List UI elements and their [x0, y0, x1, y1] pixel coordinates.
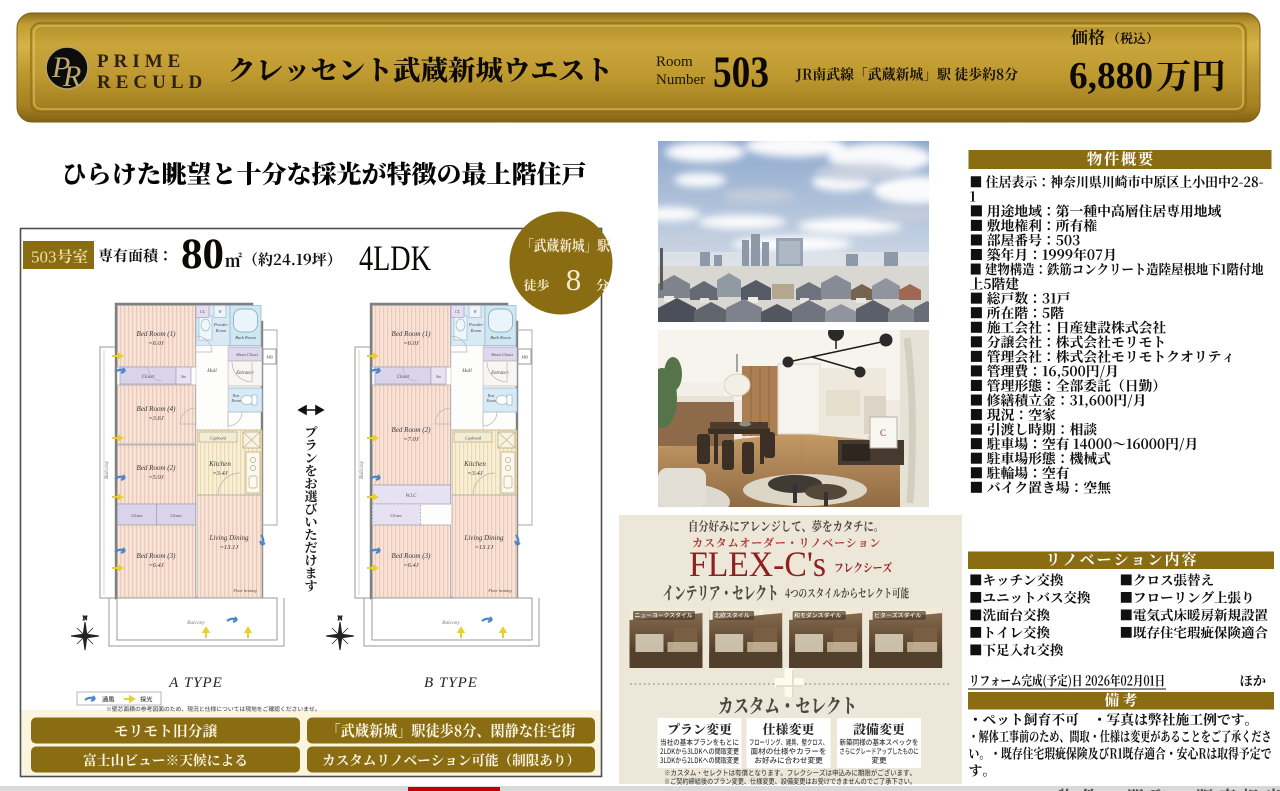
svg-text:8: 8 [566, 262, 582, 297]
svg-text:=6.0J: =6.0J [148, 340, 165, 347]
svg-text:Balcony: Balcony [442, 620, 460, 626]
svg-text:Closet: Closet [131, 513, 143, 518]
svg-text:Floor heating: Floor heating [487, 588, 511, 593]
svg-text:Room: Room [470, 328, 482, 333]
svg-text:Powder: Powder [213, 322, 229, 327]
svg-text:=3.4J: =3.4J [467, 470, 484, 477]
svg-text:Room: Room [230, 399, 240, 403]
svg-text:Room: Room [485, 399, 495, 403]
svg-text:W.I.C: W.I.C [406, 494, 418, 499]
svg-text:Bed Room (4): Bed Room (4) [137, 405, 177, 413]
svg-text:Bed Room (3): Bed Room (3) [137, 552, 177, 560]
svg-text:6,880: 6,880 [1069, 55, 1153, 97]
svg-text:Living Dining: Living Dining [208, 534, 249, 542]
svg-text:Floor heating: Floor heating [232, 588, 256, 593]
svg-text:Number: Number [656, 72, 705, 88]
svg-text:=6.4J: =6.4J [403, 562, 420, 569]
svg-text:N: N [83, 616, 88, 622]
svg-text:C: C [880, 428, 886, 438]
svg-text:Balcony: Balcony [187, 620, 205, 626]
svg-text:Powder: Powder [468, 322, 484, 327]
svg-text:CL: CL [455, 309, 461, 314]
svg-text:Sto: Sto [181, 375, 186, 379]
svg-text:Balcony: Balcony [104, 460, 110, 479]
svg-text:MB: MB [265, 355, 273, 360]
svg-text:Bed Room (1): Bed Room (1) [392, 330, 432, 338]
svg-text:=3.4J: =3.4J [212, 470, 229, 477]
svg-text:Bed Room (3): Bed Room (3) [392, 552, 432, 560]
svg-text:Bed Room (2): Bed Room (2) [137, 464, 177, 472]
svg-text:Cupboard: Cupboard [210, 436, 227, 441]
svg-text:Bath Room: Bath Room [490, 335, 511, 340]
svg-text:Closet: Closet [390, 513, 402, 518]
svg-text:=6.4J: =6.4J [148, 562, 165, 569]
svg-text:Cupboard: Cupboard [465, 436, 482, 441]
svg-text:Bed Room (1): Bed Room (1) [137, 330, 177, 338]
svg-text:4LDK: 4LDK [359, 238, 431, 278]
svg-text:CL: CL [200, 309, 206, 314]
svg-text:R: R [62, 60, 81, 93]
svg-text:Rest: Rest [487, 394, 496, 398]
svg-text:=13.1J: =13.1J [475, 544, 495, 551]
svg-text:=6.0J: =6.0J [403, 340, 420, 347]
svg-text:=7.0J: =7.0J [403, 436, 420, 443]
svg-text:FLEX-C's: FLEX-C's [689, 544, 826, 584]
svg-text:=13.1J: =13.1J [220, 544, 240, 551]
svg-text:503: 503 [31, 248, 57, 267]
svg-text:Shoes Closet: Shoes Closet [236, 352, 258, 357]
svg-text:N: N [338, 616, 343, 622]
svg-text:Room: Room [656, 54, 693, 70]
svg-text:Sto: Sto [436, 375, 441, 379]
svg-text:Kitchen: Kitchen [208, 460, 231, 468]
svg-text:Bath Room: Bath Room [235, 335, 256, 340]
svg-text:Hall: Hall [206, 368, 217, 374]
svg-text:=3.6J: =3.6J [148, 415, 165, 422]
svg-text:PRIME: PRIME [97, 51, 185, 72]
svg-text:Bed Room (2): Bed Room (2) [392, 426, 432, 434]
svg-text:Living Dining: Living Dining [463, 534, 504, 542]
svg-text:A TYPE: A TYPE [168, 675, 223, 691]
svg-text:=5.0J: =5.0J [148, 474, 165, 481]
svg-text:Balcony: Balcony [359, 460, 365, 479]
svg-text:Closet: Closet [170, 513, 182, 518]
svg-text:Rest: Rest [232, 394, 241, 398]
svg-text:RECULD: RECULD [97, 72, 207, 93]
svg-text:Shoes Closet: Shoes Closet [491, 352, 513, 357]
svg-text:Hall: Hall [461, 368, 472, 374]
svg-text:MB: MB [520, 355, 528, 360]
svg-text:80: 80 [181, 231, 224, 278]
svg-text:Kitchen: Kitchen [463, 460, 486, 468]
svg-text:503: 503 [713, 48, 769, 97]
svg-text:Room: Room [215, 328, 227, 333]
svg-text:B TYPE: B TYPE [424, 675, 478, 691]
